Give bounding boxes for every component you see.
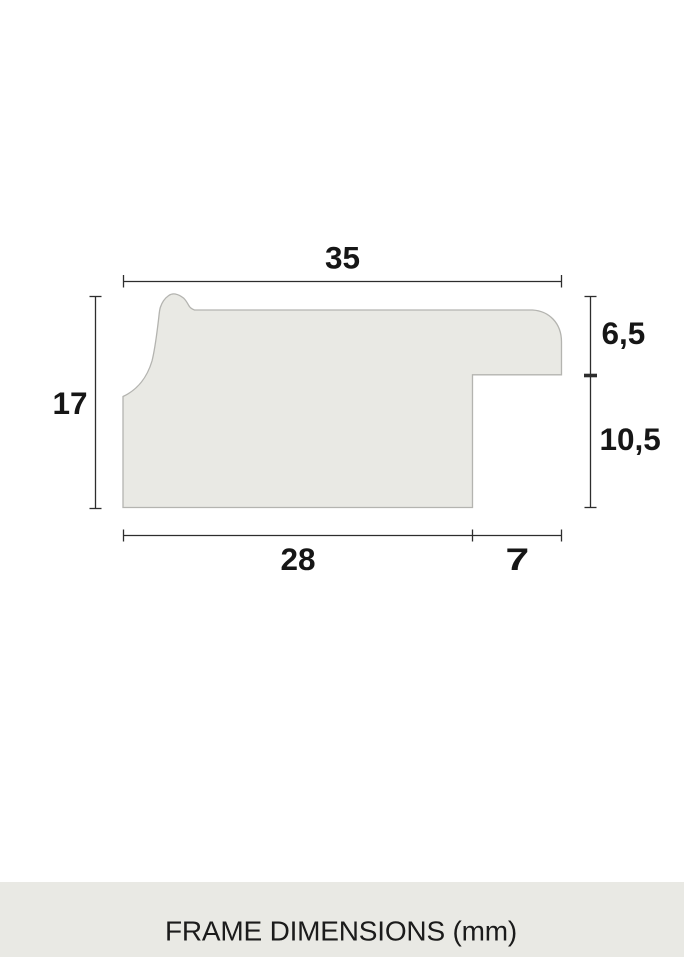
svg-text:35: 35 <box>325 239 360 275</box>
svg-text:6,5: 6,5 <box>602 315 646 351</box>
svg-text:10,5: 10,5 <box>600 421 661 457</box>
svg-text:28: 28 <box>280 541 315 577</box>
svg-text:FRAME DIMENSIONS (mm): FRAME DIMENSIONS (mm) <box>165 916 517 947</box>
svg-text:17: 17 <box>52 385 87 421</box>
svg-text:7: 7 <box>505 541 529 576</box>
